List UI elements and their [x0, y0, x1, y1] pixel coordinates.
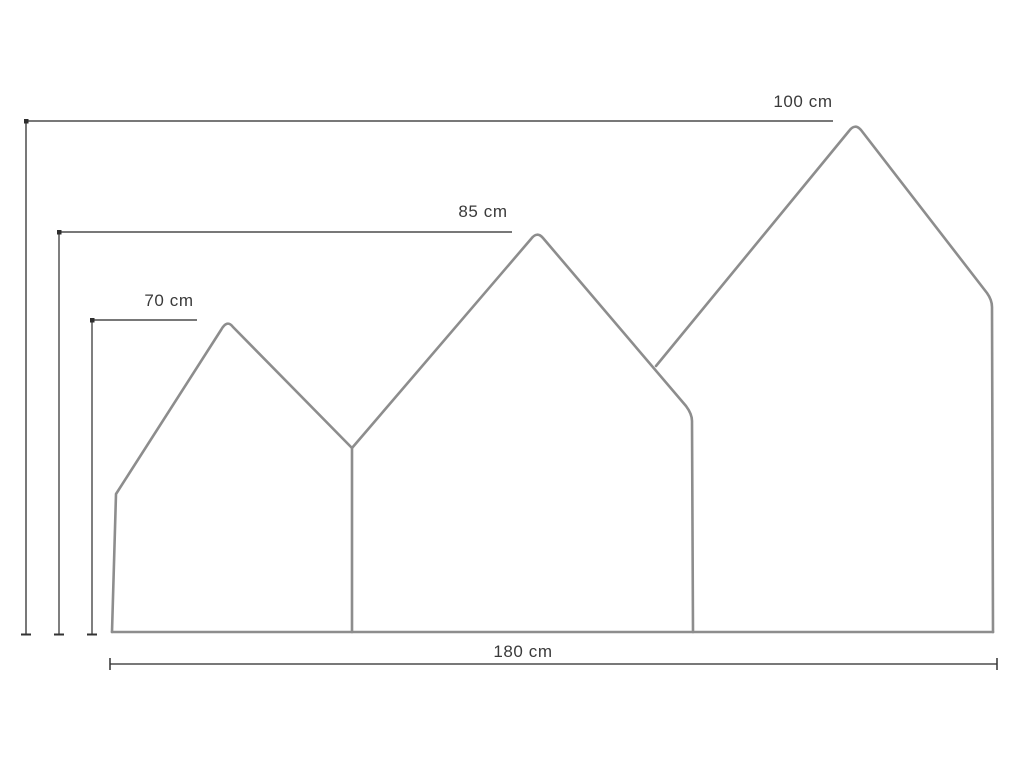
dim-85-corner-dot [57, 230, 62, 235]
width-label-180: 180 cm [493, 642, 552, 661]
height-label-85: 85 cm [458, 202, 507, 221]
large-house-outline [656, 127, 993, 632]
medium-house-outline [352, 235, 693, 632]
house-outlines [112, 127, 993, 632]
width-dimension-180: 180 cm [110, 642, 997, 670]
height-label-100: 100 cm [773, 92, 832, 111]
dim-70-corner-dot [90, 318, 95, 323]
headboard-dimension-diagram: 100 cm 85 cm 70 cm 180 cm [0, 0, 1024, 768]
small-house-outline [112, 324, 352, 632]
height-dimension-70: 70 cm [87, 291, 197, 635]
height-dimension-85: 85 cm [54, 202, 512, 635]
dim-100-corner-dot [24, 119, 29, 124]
height-dimension-100: 100 cm [21, 92, 833, 635]
height-label-70: 70 cm [144, 291, 193, 310]
diagram-canvas: 100 cm 85 cm 70 cm 180 cm [0, 0, 1024, 768]
